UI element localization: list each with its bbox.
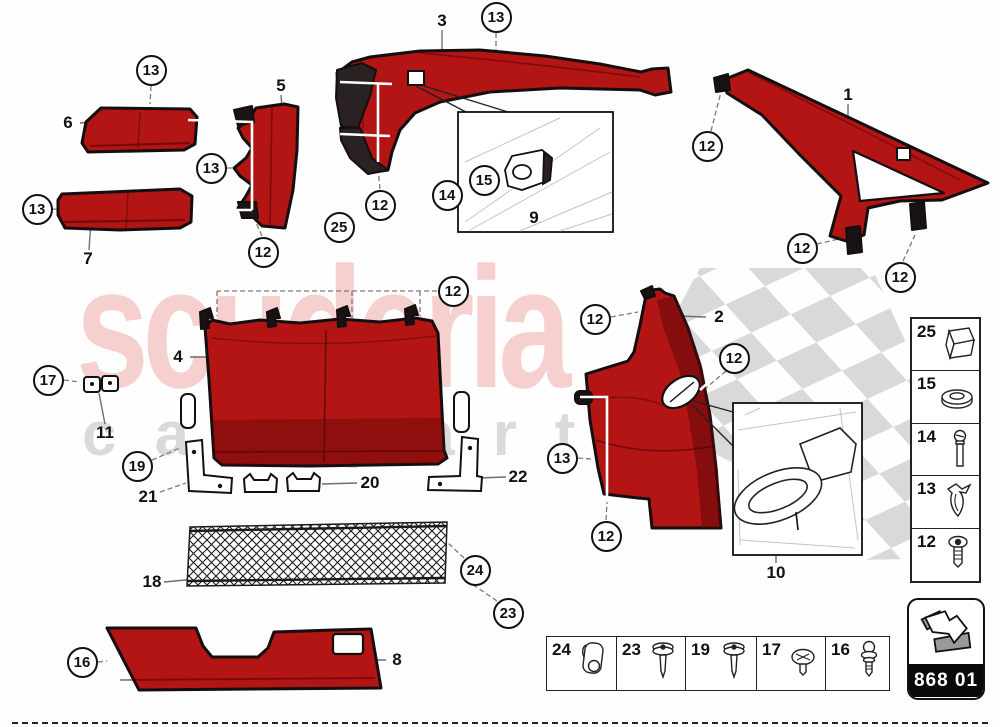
- push-rivet-icon: [936, 533, 978, 582]
- part-11-clip: [84, 376, 118, 392]
- part-7-trim-strip: [58, 189, 192, 230]
- foam-block-icon: [936, 323, 978, 372]
- part-8-sill-panel: [107, 628, 381, 690]
- dome-screw-icon: [784, 639, 822, 694]
- legend-row-12: 12: [912, 529, 979, 581]
- fastener-number: 23: [622, 640, 641, 660]
- part-18-cargo-net: [187, 522, 447, 586]
- fastener-number: 16: [831, 640, 850, 660]
- part-4-rear-wall-panel: [200, 305, 447, 466]
- washer-icon: [936, 375, 978, 424]
- legend-number: 12: [917, 532, 936, 552]
- parts-diagram-page: scuderia car parts: [0, 0, 1000, 727]
- legend-number: 14: [917, 427, 936, 447]
- fastener-number: 24: [552, 640, 571, 660]
- fastener-cell-17: 17: [757, 637, 826, 690]
- part-1-windshield-frame-trim: [714, 70, 988, 254]
- ball-stud-icon: [850, 639, 888, 694]
- legend-number: 13: [917, 479, 936, 499]
- section-code: 868 01: [909, 664, 983, 697]
- fastener-table: 24 23 19: [546, 636, 890, 691]
- hardware-legend-table: 25 15 14: [910, 317, 981, 583]
- part-6-trim-strip: [82, 108, 197, 152]
- part-20-bracket-a: [244, 474, 277, 492]
- fastener-cell-16: 16: [826, 637, 891, 690]
- fastener-number: 19: [691, 640, 710, 660]
- diagram-artwork: [0, 0, 1000, 727]
- fastener-cell-24: 24: [547, 637, 617, 690]
- fastener-cell-19: 19: [686, 637, 757, 690]
- fastener-number: 17: [762, 640, 781, 660]
- legend-row-13: 13: [912, 476, 979, 528]
- legend-row-25: 25: [912, 319, 979, 371]
- fastener-cell-23: 23: [617, 637, 686, 690]
- part-20-bracket-b: [287, 473, 320, 491]
- page-separator-line: [12, 722, 988, 724]
- clamp-clip-icon: [575, 639, 613, 694]
- legend-row-14: 14: [912, 424, 979, 476]
- legend-row-15: 15: [912, 371, 979, 423]
- legend-number: 15: [917, 374, 936, 394]
- bracket-strip-left: [181, 394, 195, 428]
- arrow-down-right-icon: [909, 600, 983, 664]
- spring-clip-icon: [936, 480, 978, 529]
- long-screw-icon: [936, 428, 978, 477]
- bracket-strip-right: [454, 392, 469, 432]
- flange-screw-icon: [644, 639, 682, 694]
- legend-number: 25: [917, 322, 936, 342]
- section-badge: 868 01: [907, 598, 985, 700]
- flange-screw-icon: [715, 639, 753, 694]
